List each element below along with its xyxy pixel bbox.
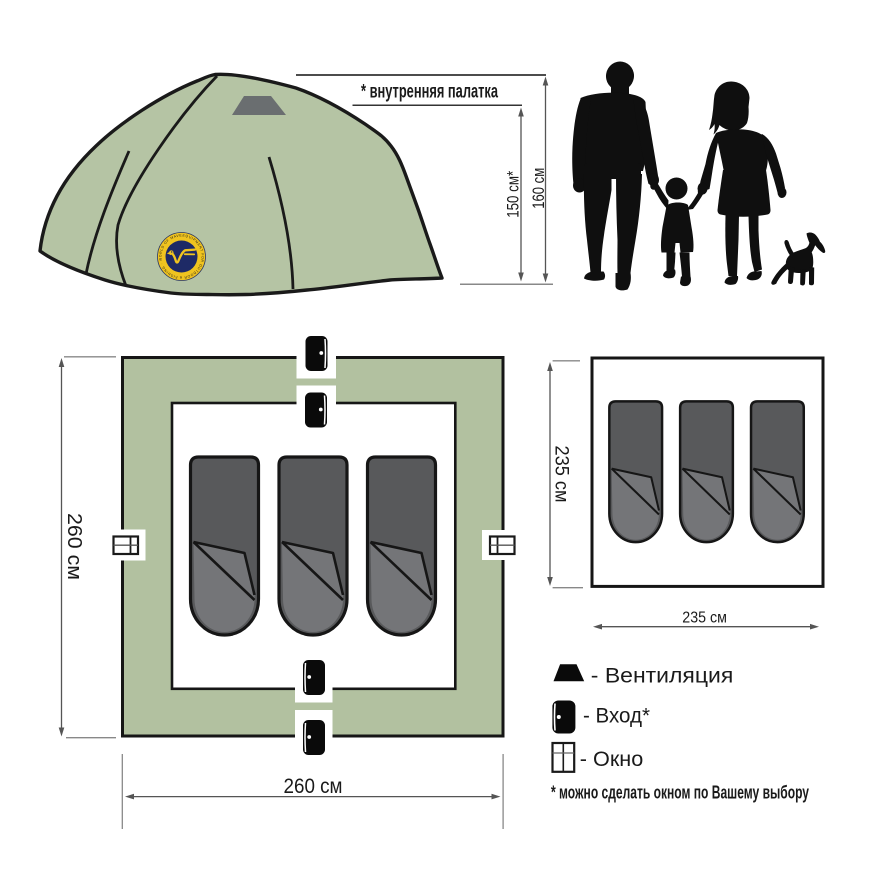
svg-text:* можно сделать окном по Вашем: * можно сделать окном по Вашему выбору: [551, 783, 809, 803]
svg-text:235 см: 235 см: [551, 446, 572, 503]
svg-text:* внутренняя палатка: * внутренняя палатка: [361, 82, 498, 103]
svg-text:- Вход*: - Вход*: [583, 704, 651, 728]
svg-text:260 см: 260 см: [284, 775, 343, 798]
svg-text:160 см: 160 см: [529, 168, 548, 209]
svg-text:150 см*: 150 см*: [504, 170, 523, 217]
svg-text:- Окно: - Окно: [580, 747, 644, 771]
svg-text:235 см: 235 см: [682, 609, 727, 626]
svg-text:260 см: 260 см: [63, 513, 85, 580]
svg-text:- Вентиляция: - Вентиляция: [591, 664, 734, 688]
